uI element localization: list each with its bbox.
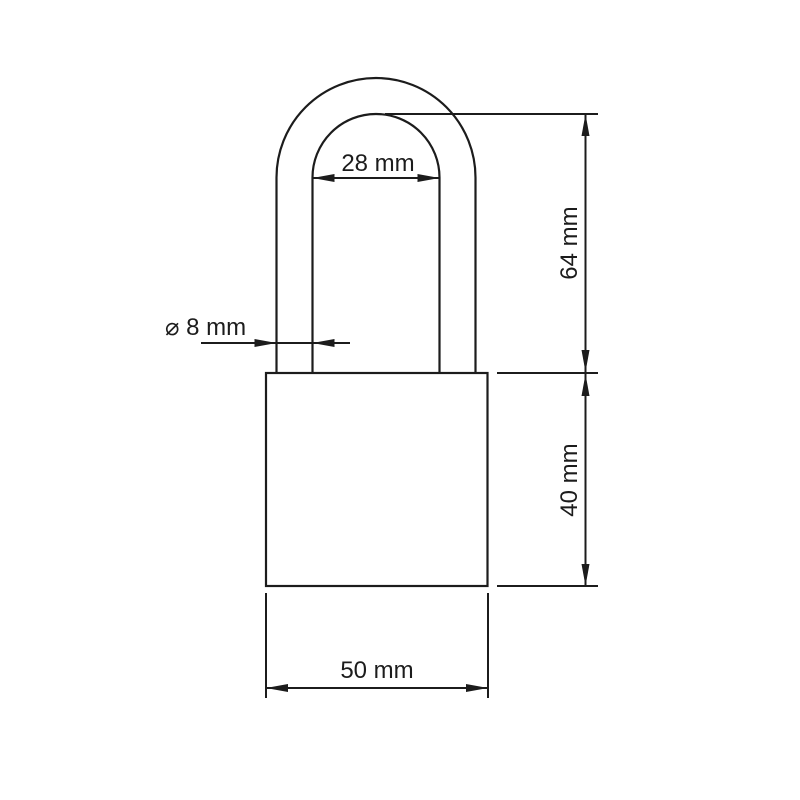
arrowhead-left-icon — [313, 339, 335, 347]
drawing-canvas: 28 mm ⌀ 8 mm 64 mm 40 mm — [0, 0, 800, 800]
dim-label-shackle-wire-diameter: ⌀ 8 mm — [165, 314, 246, 341]
arrowhead-right-icon — [255, 339, 277, 347]
dim-body-height: 40 mm — [497, 374, 598, 586]
arrowhead-left-icon — [313, 174, 335, 182]
arrowhead-right-icon — [418, 174, 440, 182]
dim-shackle-height: 64 mm — [385, 114, 598, 373]
padlock-body — [266, 373, 488, 586]
arrowhead-up-icon — [582, 374, 590, 396]
dim-label-body-width: 50 mm — [340, 657, 413, 684]
shackle-outer-contour — [277, 78, 476, 373]
arrowhead-left-icon — [266, 684, 288, 692]
padlock-dimension-drawing: 28 mm ⌀ 8 mm 64 mm 40 mm — [0, 0, 800, 800]
arrowhead-right-icon — [466, 684, 488, 692]
dim-shackle-inner-width: 28 mm — [313, 150, 440, 182]
arrowhead-down-icon — [582, 350, 590, 372]
dim-shackle-wire-diameter: ⌀ 8 mm — [165, 314, 350, 347]
dim-label-shackle-inner-width: 28 mm — [341, 150, 414, 177]
arrowhead-down-icon — [582, 564, 590, 586]
dim-body-width: 50 mm — [266, 593, 488, 698]
arrowhead-up-icon — [582, 114, 590, 136]
dim-label-body-height: 40 mm — [556, 443, 583, 516]
dim-label-shackle-height: 64 mm — [556, 206, 583, 279]
